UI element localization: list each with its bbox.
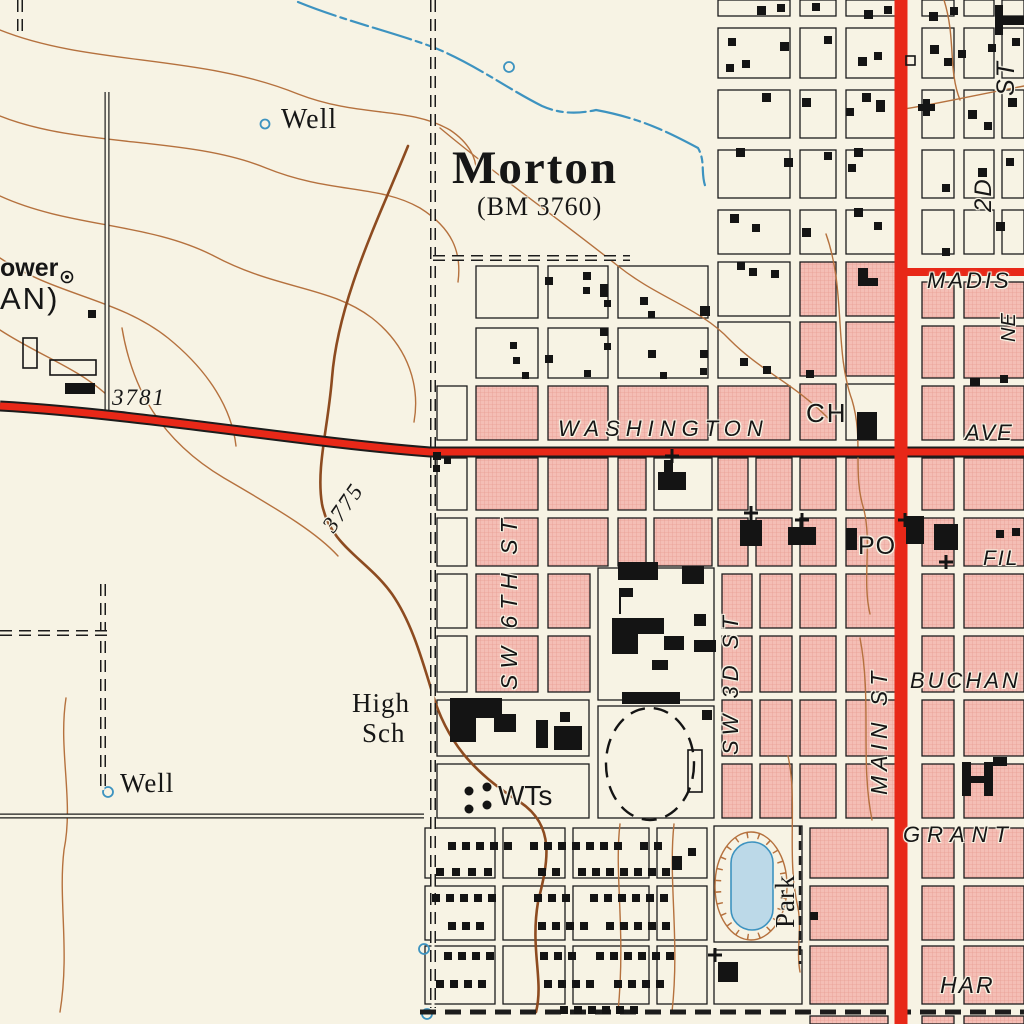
building (970, 378, 980, 386)
building (545, 277, 553, 285)
building (522, 372, 529, 379)
house (554, 952, 562, 960)
building (536, 720, 548, 748)
building (1006, 158, 1014, 166)
building (824, 36, 832, 44)
building (700, 368, 707, 375)
house (504, 842, 512, 850)
house (436, 868, 444, 876)
building (978, 168, 987, 177)
building (510, 342, 517, 349)
house (634, 922, 642, 930)
building (660, 372, 667, 379)
water-tank-dot (483, 801, 492, 810)
water-tank-dot (483, 783, 492, 792)
city-block (437, 386, 467, 440)
house (530, 842, 538, 850)
house (630, 1006, 638, 1014)
building (600, 328, 608, 336)
building (857, 412, 877, 440)
building (658, 472, 686, 490)
city-block (922, 886, 954, 940)
city-block (810, 886, 888, 940)
building (737, 262, 745, 270)
building (771, 270, 779, 278)
building (740, 520, 762, 546)
building (884, 6, 892, 14)
city-block (548, 458, 608, 510)
building (984, 122, 992, 130)
city-block (476, 266, 538, 318)
label-benchmark: (BM 3760) (477, 194, 602, 220)
house (452, 868, 460, 876)
house (640, 842, 648, 850)
house (600, 842, 608, 850)
city-block (1002, 0, 1024, 16)
label-fillmore-partial: FIL (983, 548, 1019, 569)
city-block (964, 700, 1024, 756)
city-block (922, 386, 954, 440)
building (993, 757, 1007, 766)
house (624, 952, 632, 960)
house (602, 1006, 610, 1014)
house (660, 894, 668, 902)
building (700, 350, 708, 358)
city-block (618, 518, 646, 566)
building (984, 762, 993, 796)
house (590, 894, 598, 902)
building (604, 343, 611, 350)
label-sw-3d-st: SW 3D ST (720, 611, 742, 755)
city-block (846, 0, 902, 16)
city-block (800, 262, 836, 316)
city-block (1002, 210, 1024, 254)
city-block (618, 458, 646, 510)
building (846, 108, 854, 116)
building (930, 45, 939, 54)
building (780, 42, 789, 51)
house (458, 952, 466, 960)
label-grant-st: GRANT (903, 824, 1015, 846)
city-block (760, 700, 792, 756)
house (472, 952, 480, 960)
building (929, 12, 938, 21)
building (584, 370, 591, 377)
church-cross-icon (665, 455, 679, 458)
house (592, 868, 600, 876)
building (749, 268, 757, 276)
building (694, 640, 716, 652)
building (762, 93, 771, 102)
building (788, 527, 816, 545)
house (534, 894, 542, 902)
house (544, 980, 552, 988)
building (612, 634, 638, 654)
house (490, 842, 498, 850)
church-cross-icon (708, 954, 722, 957)
building (433, 452, 441, 460)
house (656, 980, 664, 988)
building (874, 222, 882, 230)
label-st-northeast: ST (994, 60, 1019, 96)
house (648, 922, 656, 930)
house (662, 922, 670, 930)
house (448, 922, 456, 930)
city-block (810, 946, 888, 1004)
city-block (718, 150, 790, 198)
label-sw-6th-st: SW 6TH ST (498, 513, 521, 690)
house (448, 842, 456, 850)
building (718, 962, 738, 982)
building (1012, 38, 1020, 46)
label-tower-partial-1: ower (0, 256, 58, 281)
city-block (922, 1016, 954, 1024)
building (583, 272, 591, 280)
building (874, 52, 882, 60)
house (486, 952, 494, 960)
house (572, 980, 580, 988)
building (923, 99, 930, 116)
city-block (800, 90, 836, 138)
building (702, 710, 712, 720)
city-block (437, 574, 467, 628)
label-town-name: Morton (452, 145, 618, 192)
water-tank-dot (465, 787, 474, 796)
city-block (654, 518, 712, 566)
label-high-sch-1: High (352, 690, 410, 717)
building (726, 64, 734, 72)
city-block (810, 1016, 888, 1024)
water-tank-dot (465, 805, 474, 814)
church-cross-icon (939, 561, 953, 564)
house (540, 952, 548, 960)
building (854, 208, 863, 217)
building (944, 58, 952, 66)
building (648, 350, 656, 358)
city-block (800, 28, 836, 78)
label-church-ch: CH (806, 400, 848, 426)
building (824, 152, 832, 160)
building (736, 148, 745, 157)
building (864, 10, 873, 19)
house (610, 952, 618, 960)
label-main-st: MAIN ST (868, 667, 891, 795)
label-ne-partial: NE (999, 312, 1019, 342)
house (552, 868, 560, 876)
label-post-office: PO (858, 534, 896, 559)
house (566, 922, 574, 930)
building (560, 712, 570, 722)
church-cross-icon (744, 512, 758, 515)
city-block (756, 458, 792, 510)
building (848, 164, 856, 172)
house (462, 842, 470, 850)
church-cross-icon (898, 519, 912, 522)
building (742, 60, 750, 68)
house (604, 894, 612, 902)
city-block (964, 574, 1024, 628)
label-ave: AVE (965, 422, 1014, 444)
label-elev-3781: 3781 (112, 386, 166, 409)
building (612, 618, 664, 634)
house (544, 842, 552, 850)
building (858, 278, 878, 286)
city-block (922, 700, 954, 756)
city-block (437, 636, 467, 692)
house (478, 980, 486, 988)
city-block (800, 764, 836, 818)
building (968, 110, 977, 119)
building (862, 93, 871, 102)
building (1000, 375, 1008, 383)
park-pond (731, 842, 773, 930)
label-harrison-partial: HAR (940, 974, 995, 997)
city-block (922, 326, 954, 378)
building (88, 310, 96, 318)
building (513, 357, 520, 364)
label-tower-partial-2: AN) (0, 283, 59, 314)
house (432, 894, 440, 902)
city-block (922, 210, 954, 254)
building (950, 7, 958, 15)
city-block (922, 458, 954, 510)
city-block (437, 458, 467, 510)
building (942, 184, 950, 192)
house (578, 868, 586, 876)
label-water-tanks: WTs (498, 782, 552, 810)
house (562, 894, 570, 902)
city-block (598, 706, 714, 818)
building (618, 562, 658, 580)
building (971, 776, 984, 783)
building (494, 714, 516, 732)
building (688, 848, 696, 856)
city-block (548, 636, 590, 692)
city-block (760, 636, 792, 692)
building (876, 100, 885, 112)
house (552, 922, 560, 930)
label-well-north: Well (281, 106, 337, 134)
building (640, 297, 648, 305)
house (614, 980, 622, 988)
city-block (964, 28, 994, 78)
building (450, 718, 476, 742)
flag-icon (620, 588, 633, 597)
building (752, 224, 760, 232)
city-block (800, 700, 836, 756)
building (846, 528, 857, 550)
city-block (800, 458, 836, 510)
label-buchanan: BUCHAN (910, 670, 1021, 692)
building (604, 300, 611, 307)
city-block (964, 886, 1024, 940)
building (810, 912, 818, 920)
house (586, 980, 594, 988)
house (484, 868, 492, 876)
city-block (476, 458, 538, 510)
city-block (476, 328, 538, 378)
house (460, 894, 468, 902)
building (740, 358, 748, 366)
building (962, 762, 971, 796)
building (802, 98, 811, 107)
building (854, 148, 863, 157)
house (446, 894, 454, 902)
house (450, 980, 458, 988)
house (588, 1006, 596, 1014)
building (802, 228, 811, 237)
city-block (846, 574, 902, 628)
house (606, 922, 614, 930)
house (574, 1006, 582, 1014)
house (548, 894, 556, 902)
city-block (922, 574, 954, 628)
house (488, 894, 496, 902)
house (648, 868, 656, 876)
city-block (722, 764, 752, 818)
building (694, 614, 706, 626)
label-washington-ave: WASHINGTON (558, 418, 769, 440)
label-well-southwest: Well (120, 770, 174, 797)
city-block (548, 266, 608, 318)
city-block (760, 574, 792, 628)
house (596, 952, 604, 960)
city-block (964, 458, 1024, 510)
building (648, 311, 655, 318)
topographic-map-canvas: Morton(BM 3760)WellWellowerAN)37813775WA… (0, 0, 1024, 1024)
label-madison-st: MADIS (927, 270, 1012, 292)
city-block (800, 636, 836, 692)
city-block (846, 458, 902, 510)
building (996, 530, 1004, 538)
city-block (800, 322, 836, 376)
building (554, 726, 582, 750)
building (1012, 528, 1020, 536)
building (996, 222, 1005, 231)
building (763, 366, 771, 374)
building (664, 636, 684, 650)
house (654, 842, 662, 850)
building (812, 3, 820, 11)
building (444, 457, 451, 464)
house (572, 842, 580, 850)
house (468, 868, 476, 876)
house (618, 894, 626, 902)
city-block (437, 518, 467, 566)
house (476, 842, 484, 850)
building (958, 50, 966, 58)
city-block (548, 574, 590, 628)
city-block (718, 458, 748, 510)
house (444, 952, 452, 960)
building (65, 383, 95, 394)
city-block (810, 828, 888, 878)
house (464, 980, 472, 988)
building (622, 692, 680, 704)
house (560, 1006, 568, 1014)
house (436, 980, 444, 988)
house (628, 980, 636, 988)
church-cross-icon (795, 519, 809, 522)
house (538, 922, 546, 930)
house (558, 980, 566, 988)
building (730, 214, 739, 223)
house (620, 922, 628, 930)
building (545, 355, 553, 363)
house (642, 980, 650, 988)
house (568, 952, 576, 960)
city-block (718, 90, 790, 138)
house (586, 842, 594, 850)
building (942, 248, 950, 256)
building (583, 287, 590, 294)
city-block (548, 328, 608, 378)
building (858, 57, 867, 66)
house (638, 952, 646, 960)
building (433, 465, 440, 472)
city-block (922, 764, 954, 818)
house (606, 868, 614, 876)
city-block (760, 764, 792, 818)
city-block (1002, 90, 1024, 138)
label-high-sch-2: Sch (362, 720, 406, 747)
city-block (476, 386, 538, 440)
tower-icon-dot (65, 275, 69, 279)
building (988, 44, 996, 52)
house (646, 894, 654, 902)
house (634, 868, 642, 876)
city-block (964, 0, 994, 16)
building (777, 4, 785, 12)
house (662, 868, 670, 876)
city-block (964, 764, 1024, 818)
label-second-st: 2D (972, 177, 996, 212)
building (806, 370, 814, 378)
city-block (657, 946, 707, 1004)
building (784, 158, 793, 167)
building (700, 306, 710, 316)
building (682, 566, 704, 584)
city-block (846, 322, 902, 376)
city-block (1002, 150, 1024, 198)
city-block (618, 266, 708, 318)
city-block (548, 518, 608, 566)
building (1008, 98, 1017, 107)
house (558, 842, 566, 850)
building (934, 524, 958, 550)
building (728, 38, 736, 46)
city-block (800, 574, 836, 628)
house (620, 868, 628, 876)
label-park: Park (772, 875, 799, 929)
house (614, 842, 622, 850)
city-block (618, 328, 708, 378)
city-block (846, 150, 902, 198)
city-block (964, 210, 994, 254)
city-block (964, 1016, 1024, 1024)
house (652, 952, 660, 960)
house (616, 1006, 624, 1014)
building (672, 856, 682, 870)
house (538, 868, 546, 876)
house (474, 894, 482, 902)
house (476, 922, 484, 930)
house (462, 922, 470, 930)
building (995, 16, 1024, 25)
building (600, 284, 608, 297)
building (652, 660, 668, 670)
house (632, 894, 640, 902)
